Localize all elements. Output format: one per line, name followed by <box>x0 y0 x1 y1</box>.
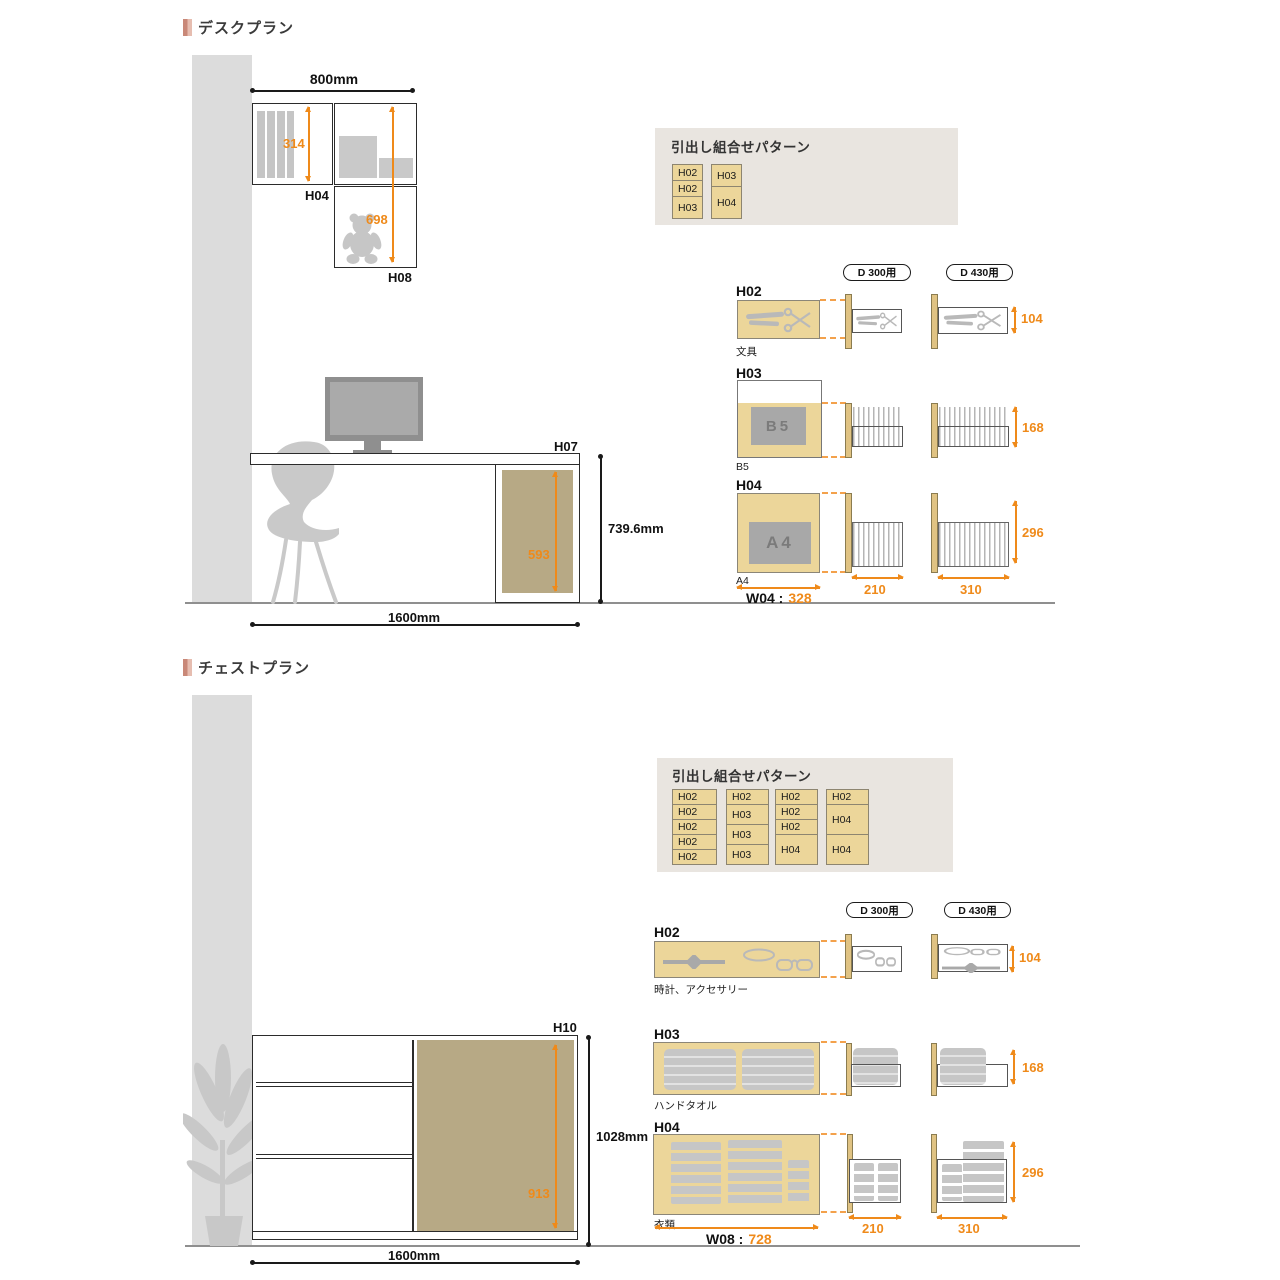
pattern-cell: H03 <box>726 824 769 845</box>
chest-base-line <box>253 1231 577 1232</box>
dimension-line <box>588 1037 590 1245</box>
drawer-side-d300 <box>852 426 903 447</box>
row-caption: B5 <box>736 461 749 473</box>
monitor-silhouette <box>325 377 423 441</box>
plant-silhouette <box>183 1020 263 1247</box>
dim-arrow-w04 <box>737 587 820 589</box>
pattern-title: 引出し組合せパターン <box>671 136 810 156</box>
folded-clothes-icon <box>671 1142 721 1204</box>
dashed-connector <box>820 299 846 301</box>
drawer-front-h03 <box>653 1042 820 1095</box>
pattern-column: H02 H03 H03 H03 <box>726 790 769 865</box>
drawer-side-d300 <box>852 946 902 972</box>
dashed-connector <box>821 1093 846 1095</box>
dim-arrow-698 <box>392 107 394 262</box>
monitor-screen <box>330 382 418 435</box>
pattern-cell: H04 <box>775 834 818 865</box>
dim-arrow-104 <box>1014 307 1016 333</box>
drawer-side-d300 <box>852 522 903 567</box>
pattern-cell: H03 <box>726 804 769 825</box>
desk-plan-title: デスクプラン <box>198 17 294 38</box>
dim-arrow-310 <box>937 1217 1007 1219</box>
d430-depth-dim: 310 <box>958 1221 980 1236</box>
dim-arrow-310 <box>938 577 1009 579</box>
width-label: W08 : <box>706 1231 743 1247</box>
b5-paper: B5 <box>751 407 806 445</box>
dim-arrow-168 <box>1013 1050 1015 1084</box>
drawer-width-dim: W08 : 728 <box>706 1231 772 1247</box>
pattern-cell: H02 <box>672 834 717 850</box>
glasses-icon <box>941 946 1005 958</box>
wall <box>192 55 252 603</box>
drawer-side-d300 <box>852 309 902 333</box>
d300-depth-dim: 210 <box>864 582 886 597</box>
dimension-line <box>252 90 413 92</box>
depth-header-d300: D 300用 <box>846 902 913 918</box>
desk-width-dim: 1600mm <box>388 610 440 625</box>
pattern-column: H02 H02 H02 H02 H02 <box>672 790 717 865</box>
chest-plan-title: チェストプラン <box>198 657 310 678</box>
folded-clothes-icon <box>942 1164 962 1201</box>
floor-line <box>185 1245 1080 1247</box>
drawer-side-panel <box>931 934 938 979</box>
desk-height-dim: 739.6mm <box>608 521 664 536</box>
row-caption: ハンドタオル <box>654 1098 717 1113</box>
row-caption: 文具 <box>736 344 757 359</box>
pattern-cell: H02 <box>672 804 717 820</box>
chest-panel-height: 913 <box>528 1186 550 1201</box>
dashed-connector <box>822 456 846 458</box>
pattern-cell: H02 <box>775 804 818 820</box>
stationery-icon <box>855 312 899 330</box>
dimension-line <box>600 456 602 602</box>
d300-depth-dim: 210 <box>862 1221 884 1236</box>
shelf-right-height: 698 <box>366 212 388 227</box>
dashed-connector <box>821 1133 846 1135</box>
dim-arrow-314 <box>308 107 310 181</box>
drawer-side-d300 <box>849 1159 901 1203</box>
drawer-side-panel <box>845 403 852 458</box>
row-label-h04: H04 <box>654 1119 680 1135</box>
shelf-label-h04: H04 <box>305 188 329 203</box>
drawer-side-d430 <box>938 307 1008 334</box>
drawer-side-panel <box>931 294 938 349</box>
dashed-connector <box>821 1041 846 1043</box>
drawer-side-d300 <box>851 1064 901 1087</box>
storage-box-silhouette <box>339 136 377 178</box>
width-label: W04 : <box>746 590 783 606</box>
drawer-side-panel <box>931 403 938 458</box>
row-caption: 時計、アクセサリー <box>654 982 748 997</box>
drawer-side-d430 <box>938 522 1009 567</box>
pattern-cell: H03 <box>711 164 742 187</box>
dim-arrow-913 <box>555 1045 557 1228</box>
cabinet-panel-height: 593 <box>528 547 550 562</box>
row-label-h03: H03 <box>736 365 762 381</box>
section-accent-bar <box>183 659 192 676</box>
depth-header-d430: D 430用 <box>946 264 1013 281</box>
pattern-cell: H02 <box>726 789 769 805</box>
row-height-dim: 296 <box>1022 1165 1044 1180</box>
drawer-side-panel <box>845 294 852 349</box>
drawer-side-d430 <box>938 426 1009 447</box>
chest-divider <box>412 1040 414 1231</box>
pattern-column: H02 H04 H04 <box>826 790 869 865</box>
depth-header-d300: D 300用 <box>843 264 911 281</box>
dim-arrow-593 <box>555 472 557 591</box>
pattern-cell: H04 <box>826 804 869 835</box>
shelf-label-h08: H08 <box>388 270 412 285</box>
width-value: 728 <box>748 1231 771 1247</box>
folded-clothes-icon <box>854 1163 874 1201</box>
towel-stack-icon <box>742 1049 814 1090</box>
shelf-inner-height: 314 <box>283 136 305 151</box>
chest-width-dim: 1600mm <box>388 1248 440 1263</box>
drawer-side-panel <box>931 493 938 573</box>
drawer-front-h04: A4 <box>737 493 820 573</box>
pattern-column: H03 H04 <box>711 165 742 219</box>
dim-arrow-210 <box>852 577 903 579</box>
chest-shelf <box>256 1154 412 1159</box>
dim-arrow-168 <box>1015 407 1017 447</box>
dashed-connector <box>821 1211 846 1213</box>
pattern-cell: H02 <box>672 164 703 181</box>
dashed-connector <box>822 402 846 404</box>
folded-clothes-icon <box>788 1160 809 1204</box>
stationery-icon <box>942 310 1004 331</box>
row-label-h03: H03 <box>654 1026 680 1042</box>
drawer-side-d430 <box>937 1159 1007 1203</box>
pattern-cell: H02 <box>672 789 717 805</box>
desk-label-h07: H07 <box>554 439 578 454</box>
dashed-connector <box>820 337 846 339</box>
pattern-title: 引出し組合せパターン <box>672 765 811 785</box>
pattern-column: H02 H02 H03 <box>672 165 703 219</box>
watch-icon <box>942 963 1000 973</box>
dashed-connector <box>822 571 846 573</box>
section-accent-bar <box>183 19 192 36</box>
dashed-connector <box>822 492 846 494</box>
pattern-cell: H02 <box>775 789 818 805</box>
drawer-width-dim: W04 : 328 <box>746 590 812 606</box>
chest-height-dim: 1028mm <box>596 1129 648 1144</box>
dashed-connector <box>821 976 846 978</box>
pattern-cell: H02 <box>775 819 818 835</box>
dim-arrow-104 <box>1012 946 1014 972</box>
a4-paper: A4 <box>749 522 811 564</box>
drawer-front-h04 <box>653 1134 820 1215</box>
row-height-dim: 168 <box>1022 1060 1044 1075</box>
catalog-page: デスクプラン 800mm 314 698 H04 H08 <box>0 0 1280 1280</box>
row-label-h02: H02 <box>654 924 680 940</box>
row-label-h02: H02 <box>736 283 762 299</box>
drawer-front-h03: B5 <box>737 380 822 458</box>
drawer-side-d430 <box>938 944 1008 972</box>
cabinet-door-panel <box>502 470 573 593</box>
pattern-cell: H03 <box>672 196 703 219</box>
pattern-cell: H02 <box>672 849 717 865</box>
pattern-cell: H04 <box>826 834 869 865</box>
row-height-dim: 104 <box>1019 950 1041 965</box>
depth-header-d430: D 430用 <box>944 902 1011 918</box>
pattern-cell: H02 <box>672 180 703 197</box>
pattern-cell: H02 <box>826 789 869 805</box>
dashed-connector <box>821 940 846 942</box>
width-value: 328 <box>788 590 811 606</box>
pattern-column: H02 H02 H02 H04 <box>775 790 818 865</box>
row-label-h04: H04 <box>736 477 762 493</box>
pattern-cell: H03 <box>726 844 769 865</box>
towel-stack-icon <box>940 1048 986 1085</box>
drawer-front-h02 <box>654 941 820 978</box>
drawer-side-panel <box>845 493 852 573</box>
folded-clothes-icon <box>878 1163 898 1201</box>
d430-depth-dim: 310 <box>960 582 982 597</box>
drawer-side-panel <box>845 934 852 979</box>
chest-sliding-door <box>417 1040 574 1231</box>
dim-arrow-296 <box>1015 501 1017 563</box>
chest-label-h10: H10 <box>553 1020 577 1035</box>
glasses-icon <box>855 949 899 969</box>
storage-box-silhouette <box>379 158 413 178</box>
drawer-front-h02 <box>737 300 820 339</box>
shelf-width-dim: 800mm <box>305 71 363 87</box>
row-height-dim: 168 <box>1022 420 1044 435</box>
towel-stack-icon <box>664 1049 736 1090</box>
pattern-cell: H02 <box>672 819 717 835</box>
pattern-cell: H04 <box>711 186 742 219</box>
dim-arrow-296 <box>1013 1142 1015 1202</box>
row-height-dim: 104 <box>1021 311 1043 326</box>
glasses-icon <box>739 947 819 975</box>
watch-icon <box>663 955 725 969</box>
folded-clothes-icon <box>728 1140 782 1204</box>
chest-shelf <box>256 1082 412 1087</box>
stationery-icon <box>744 307 814 333</box>
dim-arrow-210 <box>849 1217 901 1219</box>
row-height-dim: 296 <box>1022 525 1044 540</box>
dim-arrow-w08 <box>655 1227 818 1229</box>
